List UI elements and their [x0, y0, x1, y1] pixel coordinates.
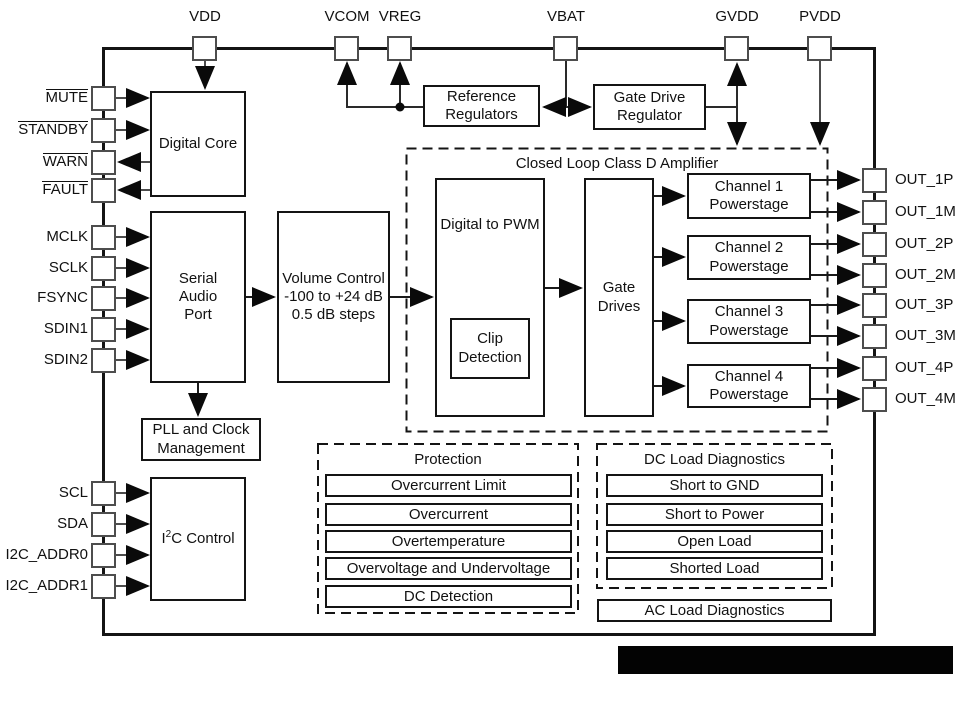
- pin-label-sdin1: SDIN1: [0, 320, 88, 338]
- pin-sdin2: [91, 348, 116, 373]
- channel4-powerstage-block: Channel 4 Powerstage: [687, 364, 811, 408]
- pin-label-out-2m: OUT_2M: [895, 266, 956, 284]
- pin-mclk: [91, 225, 116, 250]
- pin-out-4p: [862, 356, 887, 381]
- digital-to-pwm-block: Digital to PWM: [435, 178, 545, 417]
- protection-row: Overtemperature: [325, 530, 572, 553]
- pin-out-1p: [862, 168, 887, 193]
- digital-core-block: Digital Core: [150, 91, 246, 197]
- dc-load-row: Short to Power: [606, 503, 823, 526]
- pin-label-out-1p: OUT_1P: [895, 171, 953, 189]
- serial-audio-port-block: Serial Audio Port: [150, 211, 246, 383]
- dc-load-group-title: DC Load Diagnostics: [597, 451, 832, 468]
- pin-out-1m: [862, 200, 887, 225]
- junction-dot: [396, 103, 405, 112]
- pin-label-scl: SCL: [0, 484, 88, 502]
- channel3-powerstage-block: Channel 3 Powerstage: [687, 299, 811, 344]
- pin-out-2m: [862, 263, 887, 288]
- pin-label-fault: FAULT: [0, 181, 88, 199]
- dc-load-row: Short to GND: [606, 474, 823, 497]
- pin-out-4m: [862, 387, 887, 412]
- dc-load-row: Shorted Load: [606, 557, 823, 580]
- pll-clock-block: PLL and Clock Management: [141, 418, 261, 461]
- pin-label-i2c-addr1: I2C_ADDR1: [0, 577, 88, 595]
- pin-label-out-2p: OUT_2P: [895, 235, 953, 253]
- pin-label-vdd: VDD: [165, 8, 245, 26]
- protection-row: Overcurrent: [325, 503, 572, 526]
- pin-label-vreg: VREG: [360, 8, 440, 26]
- channel2-powerstage-block: Channel 2 Powerstage: [687, 235, 811, 280]
- dc-load-row: Open Load: [606, 530, 823, 553]
- pin-gvdd: [724, 36, 749, 61]
- pin-label-out-1m: OUT_1M: [895, 203, 956, 221]
- pin-label-out-3p: OUT_3P: [895, 296, 953, 314]
- pin-i2c-addr1: [91, 574, 116, 599]
- pin-sclk: [91, 256, 116, 281]
- channel1-powerstage-block: Channel 1 Powerstage: [687, 173, 811, 219]
- pin-fsync: [91, 286, 116, 311]
- i2c-control-block: I2C Control: [150, 477, 246, 601]
- pin-label-sda: SDA: [0, 515, 88, 533]
- pin-out-2p: [862, 232, 887, 257]
- pin-warn: [91, 150, 116, 175]
- pin-vcom: [334, 36, 359, 61]
- pin-vreg: [387, 36, 412, 61]
- pin-label-mute: MUTE: [0, 89, 88, 107]
- pin-label-sdin2: SDIN2: [0, 351, 88, 369]
- amp-group-title: Closed Loop Class D Amplifier: [406, 155, 828, 172]
- pin-out-3m: [862, 324, 887, 349]
- pin-pvdd: [807, 36, 832, 61]
- pin-fault: [91, 178, 116, 203]
- pin-label-mclk: MCLK: [0, 228, 88, 246]
- pin-mute: [91, 86, 116, 111]
- pin-label-standby: STANDBY: [0, 121, 88, 139]
- pin-standby: [91, 118, 116, 143]
- i2c-control-label: I2C Control: [161, 530, 234, 548]
- gate-drive-regulator-block: Gate Drive Regulator: [593, 84, 706, 130]
- volume-control-block: Volume Control -100 to +24 dB 0.5 dB ste…: [277, 211, 390, 383]
- pin-vdd: [192, 36, 217, 61]
- pin-label-vbat: VBAT: [526, 8, 606, 26]
- protection-group-title: Protection: [318, 451, 578, 468]
- pin-label-sclk: SCLK: [0, 259, 88, 277]
- pin-i2c-addr0: [91, 543, 116, 568]
- clip-detection-block: Clip Detection: [450, 318, 530, 379]
- pin-label-out-3m: OUT_3M: [895, 327, 956, 345]
- reference-regulators-block: Reference Regulators: [423, 85, 540, 127]
- pin-label-gvdd: GVDD: [697, 8, 777, 26]
- pin-label-pvdd: PVDD: [780, 8, 860, 26]
- pin-label-out-4p: OUT_4P: [895, 359, 953, 377]
- pin-out-3p: [862, 293, 887, 318]
- protection-row: Overvoltage and Undervoltage: [325, 557, 572, 580]
- redacted-bar: [618, 646, 953, 674]
- pin-scl: [91, 481, 116, 506]
- pin-label-i2c-addr0: I2C_ADDR0: [0, 546, 88, 564]
- block-diagram: VDD VCOM VREG VBAT GVDD PVDD MUTE STANDB…: [0, 0, 979, 702]
- pin-sda: [91, 512, 116, 537]
- protection-row: Overcurrent Limit: [325, 474, 572, 497]
- pin-sdin1: [91, 317, 116, 342]
- pin-label-fsync: FSYNC: [0, 289, 88, 307]
- gate-drives-block: Gate Drives: [584, 178, 654, 417]
- ac-load-diagnostics-box: AC Load Diagnostics: [597, 599, 832, 622]
- protection-row: DC Detection: [325, 585, 572, 608]
- pin-label-warn: WARN: [0, 153, 88, 171]
- pin-vbat: [553, 36, 578, 61]
- pin-label-out-4m: OUT_4M: [895, 390, 956, 408]
